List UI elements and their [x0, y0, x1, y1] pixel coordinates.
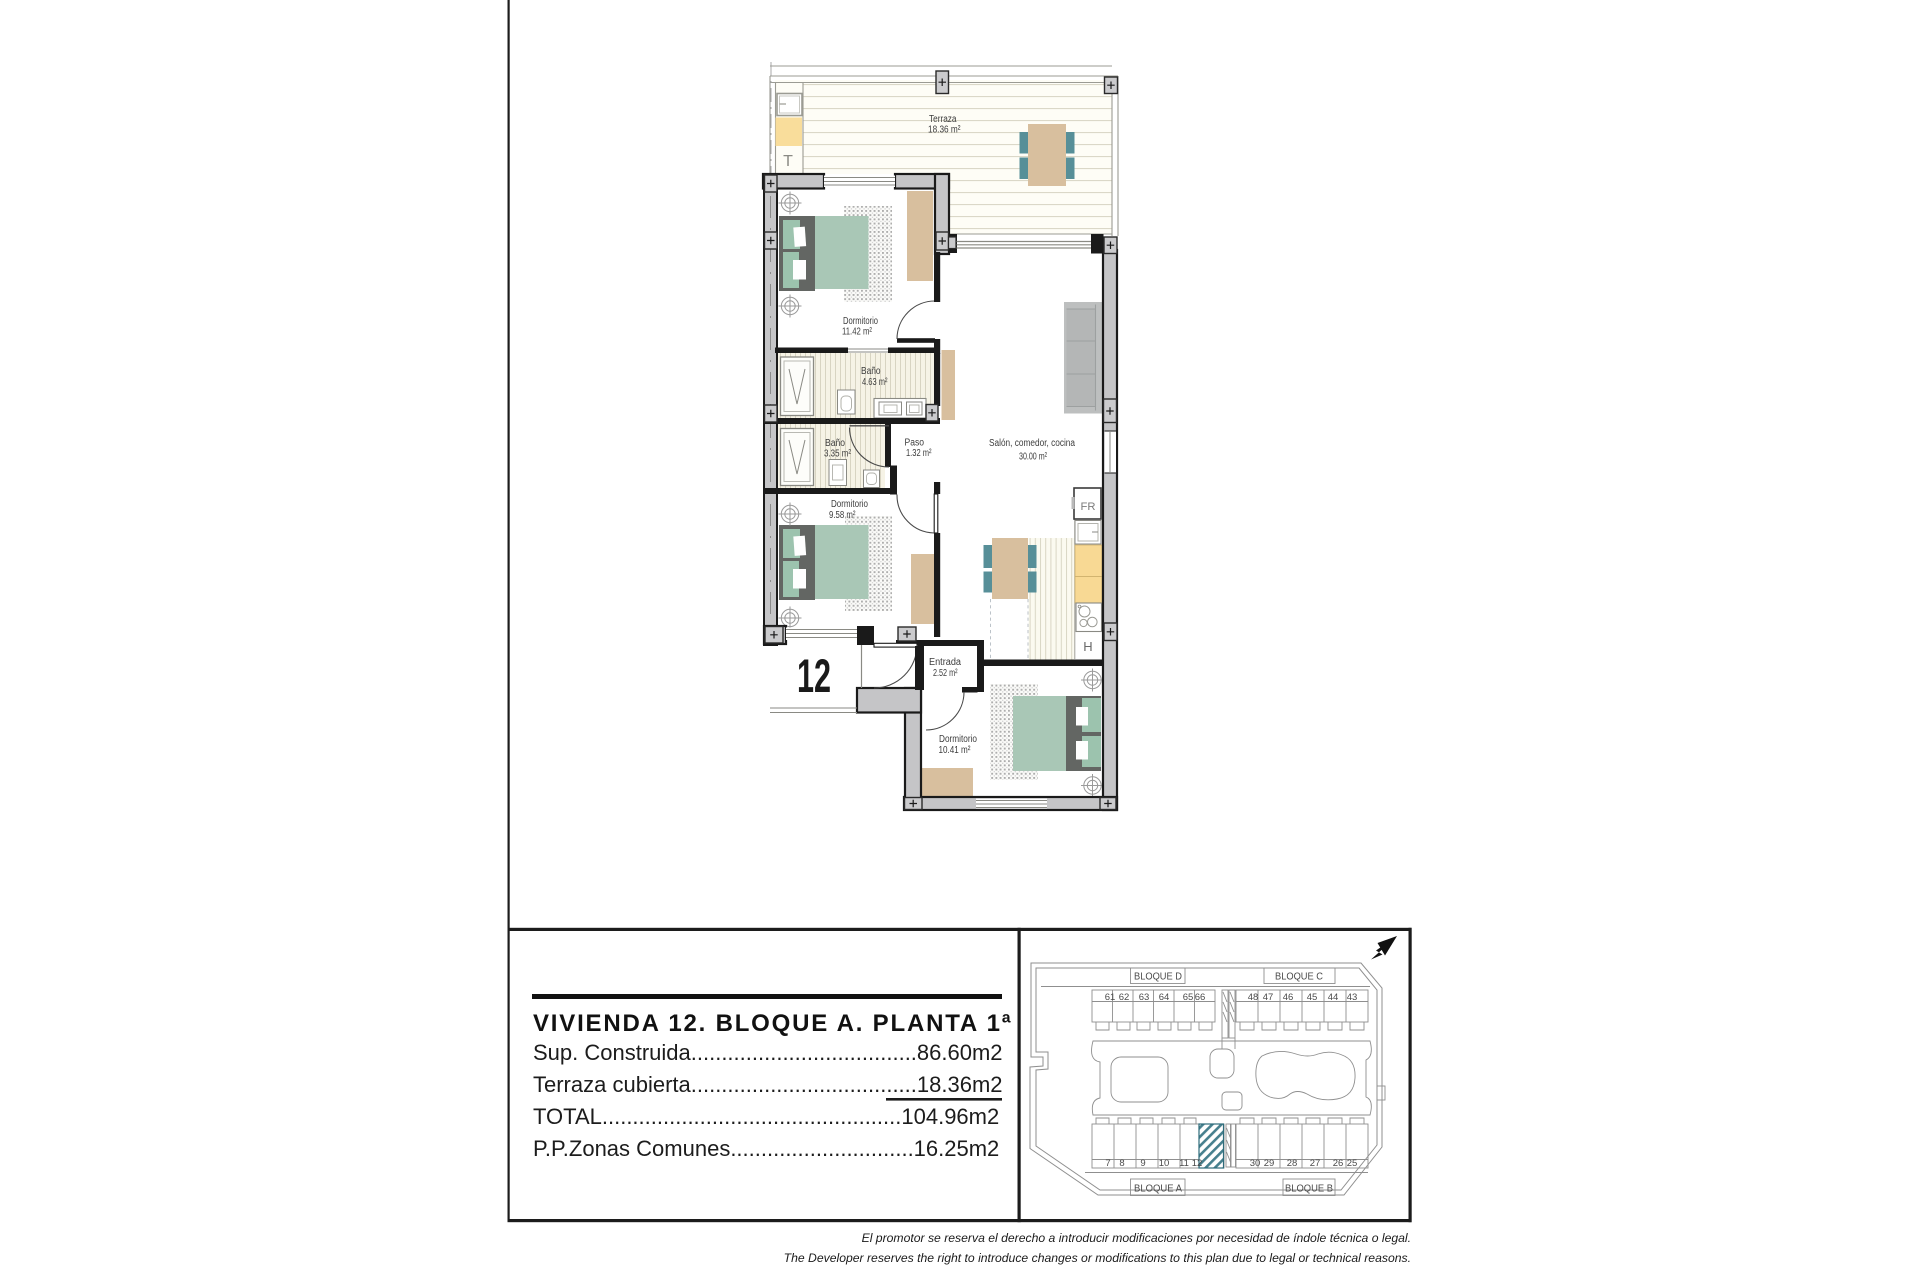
svg-text:TOTAL.........................: TOTAL...................................…: [533, 1104, 999, 1129]
svg-text:El promotor se reserva el dere: El promotor se reserva el derecho a intr…: [862, 1231, 1411, 1245]
svg-text:2.52 m²: 2.52 m²: [933, 668, 958, 679]
svg-text:25: 25: [1347, 1158, 1358, 1169]
svg-text:27: 27: [1310, 1158, 1321, 1169]
svg-text:63: 63: [1139, 992, 1150, 1003]
svg-text:Dormitorio: Dormitorio: [939, 734, 977, 745]
svg-text:VIVIENDA 12. BLOQUE A. PLANTA: VIVIENDA 12. BLOQUE A. PLANTA 1ª: [533, 1010, 1012, 1037]
svg-text:T: T: [783, 153, 793, 170]
svg-text:66: 66: [1195, 992, 1206, 1003]
svg-text:28: 28: [1287, 1158, 1298, 1169]
svg-text:44: 44: [1328, 992, 1339, 1003]
svg-text:H: H: [1083, 639, 1092, 654]
svg-text:Entrada: Entrada: [929, 657, 961, 668]
svg-text:Dormitorio: Dormitorio: [843, 316, 878, 327]
svg-text:18.36 m²: 18.36 m²: [928, 125, 961, 136]
svg-text:11: 11: [1179, 1158, 1189, 1169]
svg-text:Paso: Paso: [905, 438, 925, 449]
svg-text:47: 47: [1263, 992, 1274, 1003]
svg-text:26: 26: [1333, 1158, 1344, 1169]
svg-text:65: 65: [1183, 992, 1194, 1003]
svg-text:30: 30: [1250, 1158, 1261, 1169]
svg-text:10: 10: [1159, 1158, 1170, 1169]
svg-text:62: 62: [1119, 992, 1130, 1003]
svg-text:48: 48: [1248, 992, 1259, 1003]
svg-text:11.42 m²: 11.42 m²: [842, 327, 873, 338]
svg-text:1.32 m²: 1.32 m²: [906, 448, 932, 459]
svg-text:29: 29: [1264, 1158, 1275, 1169]
svg-text:Baño: Baño: [825, 438, 845, 449]
svg-text:Terraza cubierta..............: Terraza cubierta........................…: [533, 1072, 1003, 1097]
svg-text:BLOQUE D: BLOQUE D: [1134, 972, 1182, 983]
svg-text:8: 8: [1119, 1158, 1124, 1169]
svg-text:12: 12: [797, 649, 831, 702]
svg-text:61: 61: [1105, 992, 1116, 1003]
svg-text:The Developer reserves the rig: The Developer reserves the right to intr…: [784, 1251, 1411, 1265]
svg-text:BLOQUE B: BLOQUE B: [1285, 1184, 1333, 1195]
svg-text:45: 45: [1307, 992, 1318, 1003]
svg-text:Dormitorio: Dormitorio: [831, 499, 868, 510]
svg-text:9.58 m²: 9.58 m²: [829, 510, 856, 521]
svg-text:9: 9: [1140, 1158, 1145, 1169]
svg-text:43: 43: [1347, 992, 1358, 1003]
svg-text:10.41 m²: 10.41 m²: [939, 745, 972, 756]
svg-text:3.35 m²: 3.35 m²: [824, 449, 852, 460]
svg-text:FR: FR: [1081, 501, 1096, 513]
svg-text:4.63 m²: 4.63 m²: [862, 377, 888, 388]
svg-text:Salón, comedor, cocina: Salón, comedor, cocina: [989, 438, 1075, 449]
svg-text:Sup. Construida...............: Sup. Construida.........................…: [533, 1040, 1003, 1065]
svg-text:46: 46: [1283, 992, 1294, 1003]
svg-text:12: 12: [1192, 1158, 1203, 1169]
svg-text:BLOQUE A: BLOQUE A: [1134, 1184, 1182, 1195]
svg-text:BLOQUE C: BLOQUE C: [1275, 972, 1323, 983]
svg-text:7: 7: [1105, 1158, 1110, 1169]
svg-text:Baño: Baño: [861, 366, 881, 377]
svg-text:64: 64: [1159, 992, 1170, 1003]
svg-text:30.00 m²: 30.00 m²: [1019, 452, 1047, 463]
svg-text:Terraza: Terraza: [929, 114, 957, 125]
svg-text:P.P.Zonas Comunes.............: P.P.Zonas Comunes.......................…: [533, 1136, 999, 1161]
